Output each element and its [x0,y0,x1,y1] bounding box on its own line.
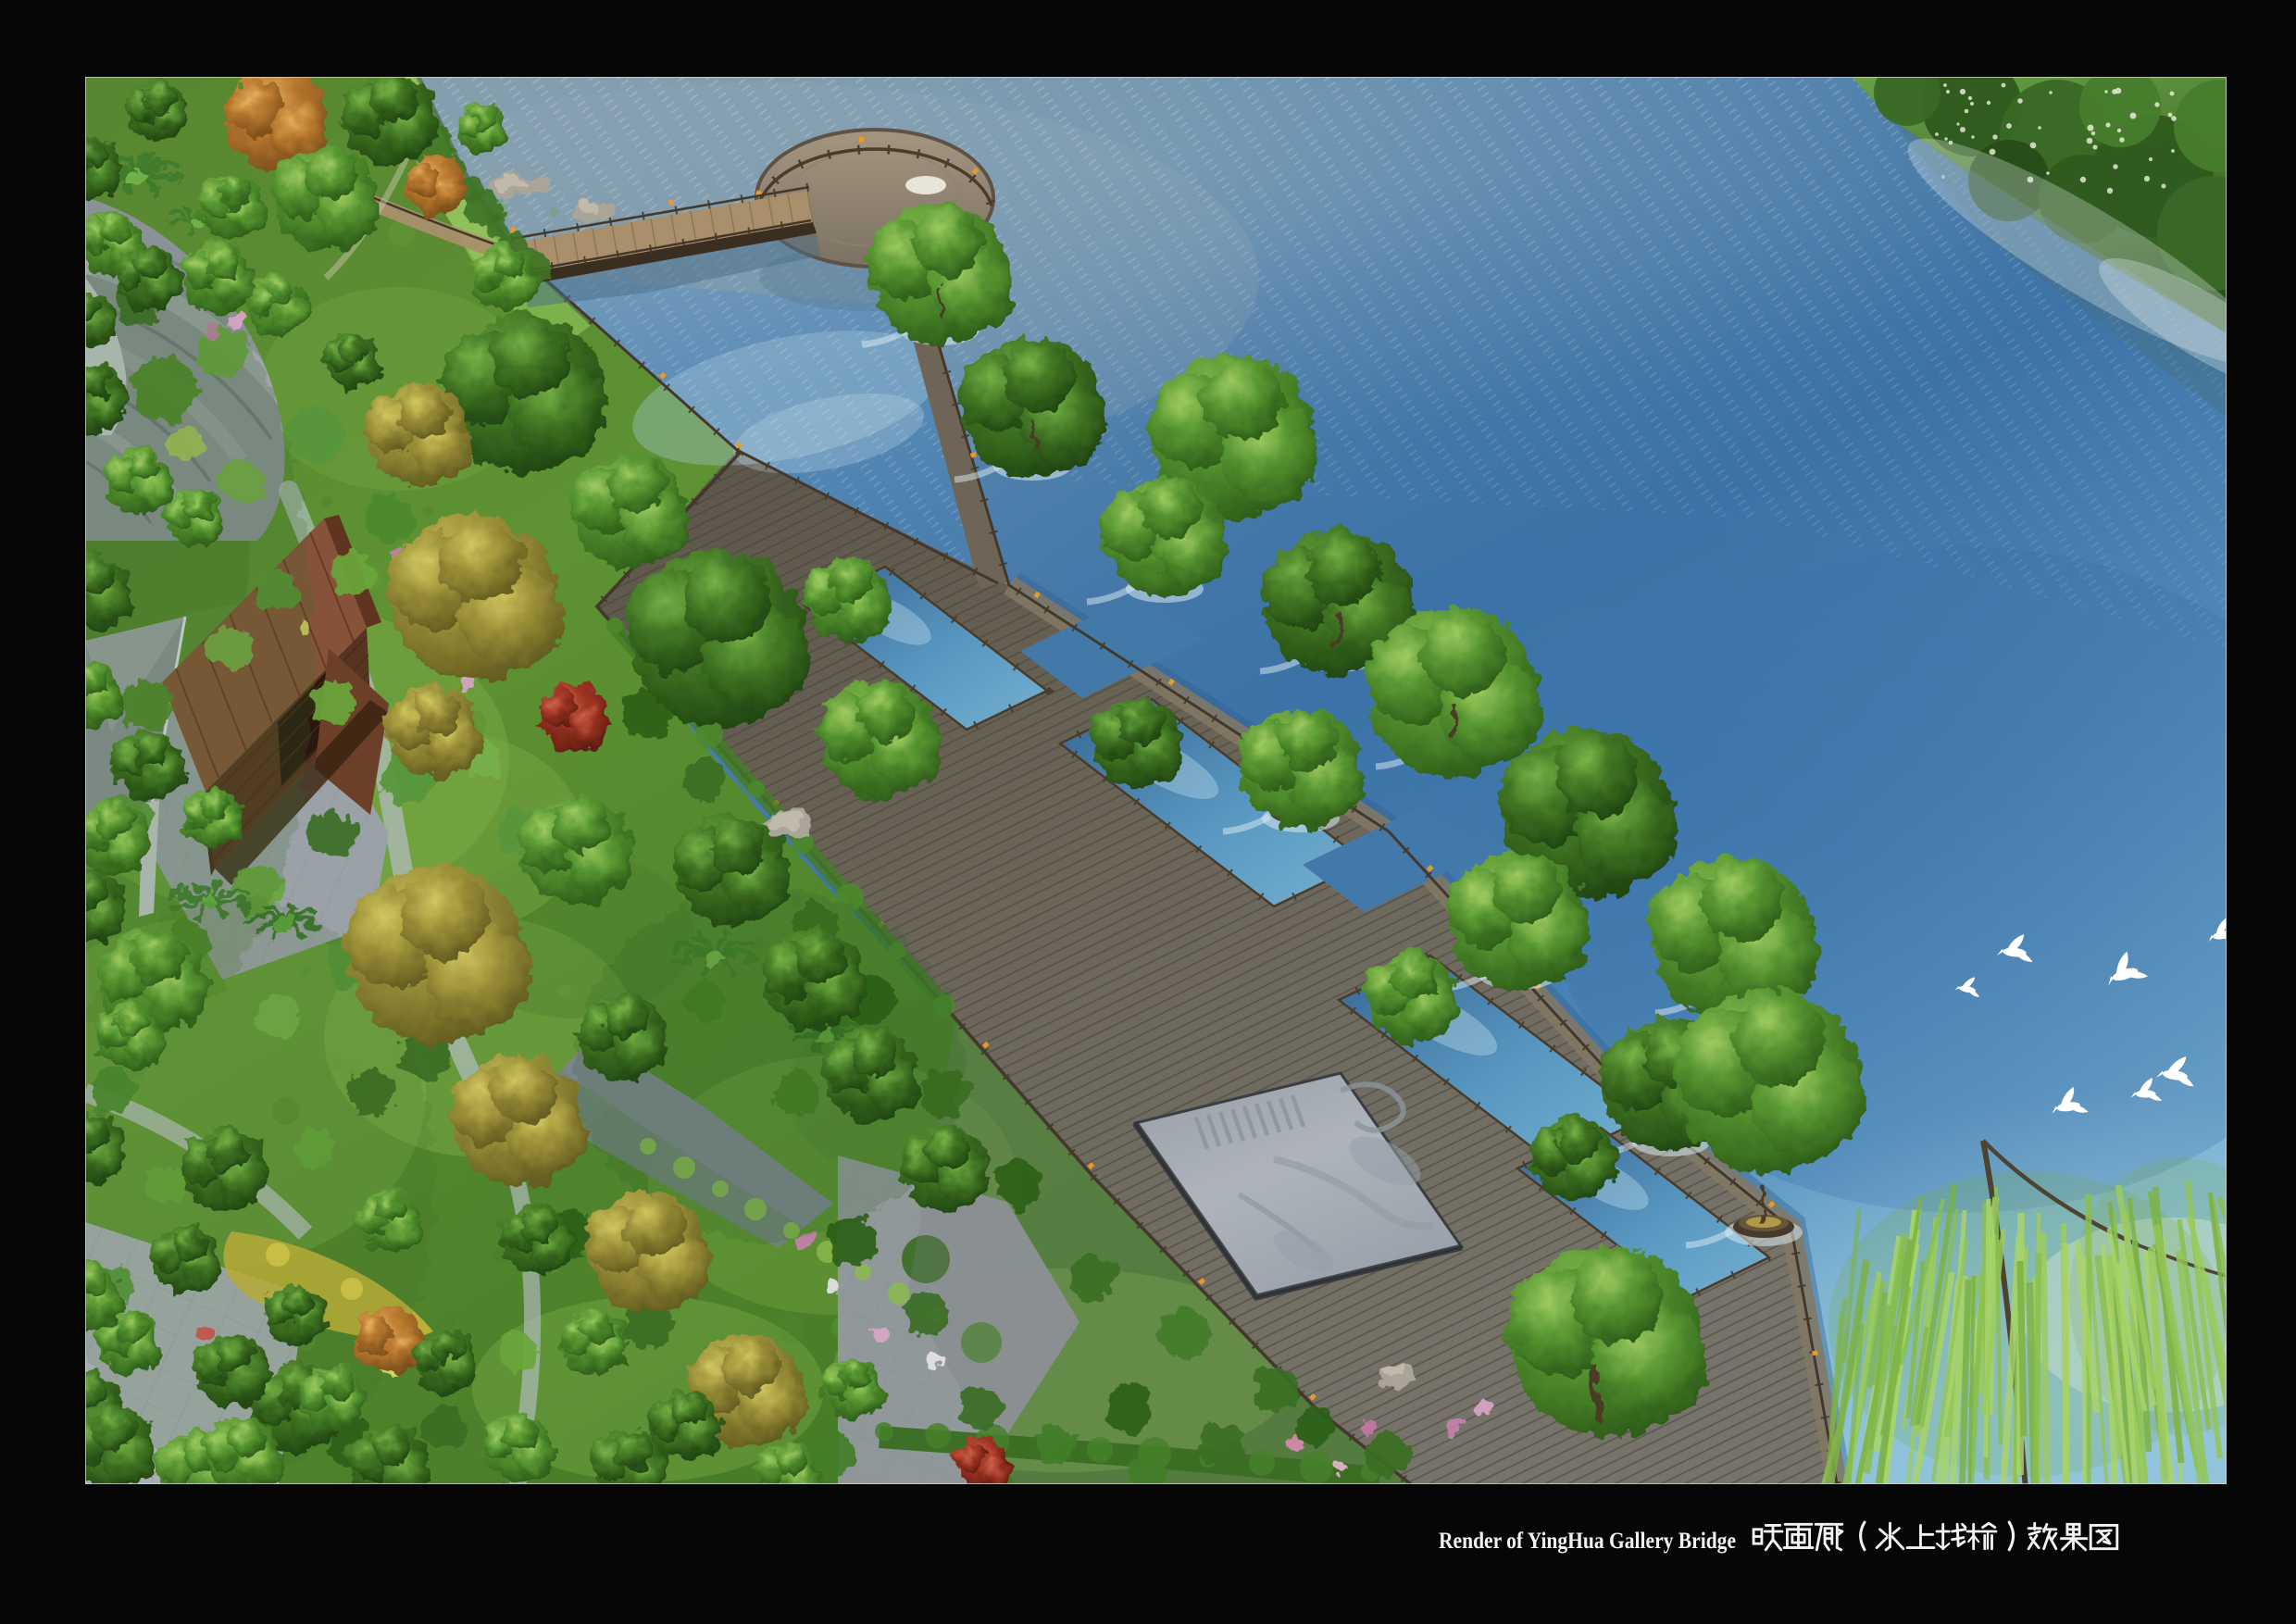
svg-text:Render of YingHua Gallery Brid: Render of YingHua Gallery Bridge [1439,1529,1736,1554]
